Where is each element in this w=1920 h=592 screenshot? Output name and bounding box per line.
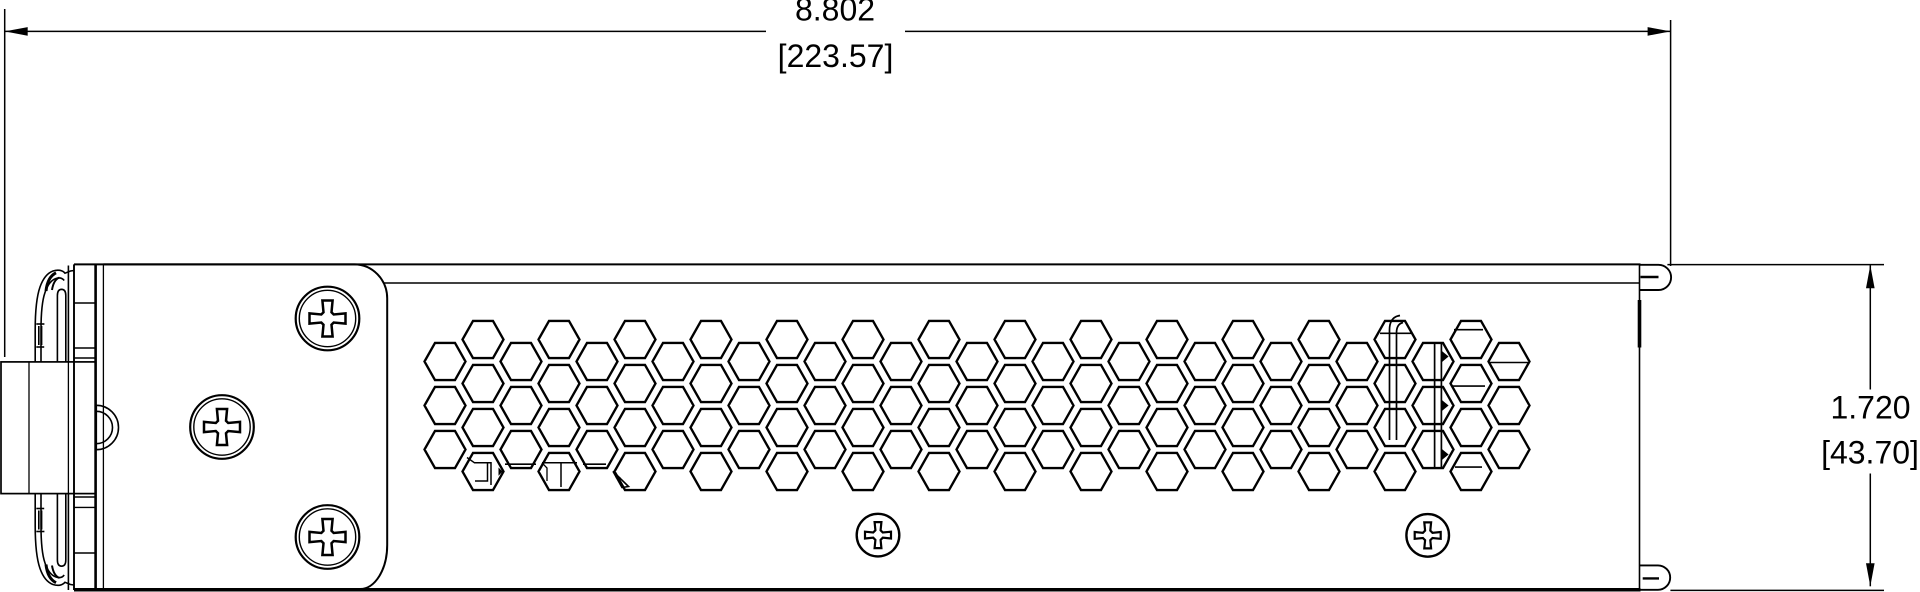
svg-text:8.802: 8.802	[795, 0, 875, 28]
svg-text:[223.57]: [223.57]	[778, 38, 894, 74]
svg-text:[43.70]: [43.70]	[1821, 434, 1919, 470]
svg-text:1.720: 1.720	[1830, 390, 1910, 426]
